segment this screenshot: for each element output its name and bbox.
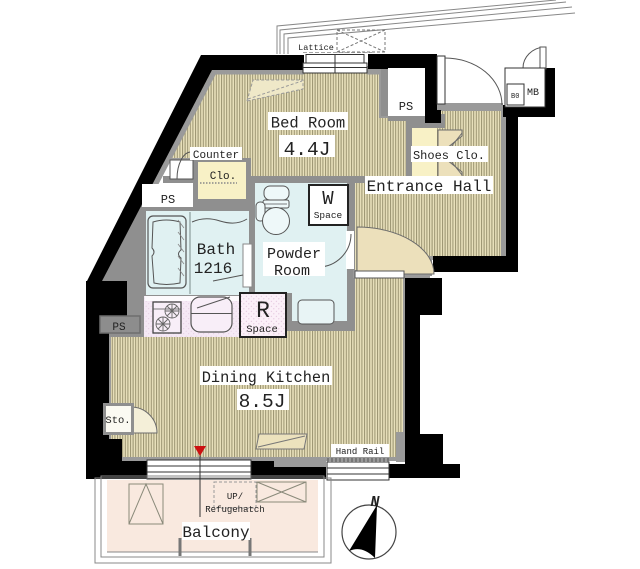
svg-text:B0: B0: [511, 93, 519, 101]
svg-text:PS: PS: [161, 193, 175, 207]
svg-text:R: R: [256, 298, 270, 324]
svg-text:Dining Kitchen: Dining Kitchen: [202, 369, 331, 387]
svg-text:Space: Space: [246, 324, 278, 336]
svg-text:Lattice: Lattice: [298, 43, 334, 53]
svg-text:PS: PS: [399, 100, 413, 114]
svg-text:MB: MB: [527, 88, 539, 99]
svg-text:1216: 1216: [194, 260, 232, 278]
svg-text:Bed Room: Bed Room: [271, 115, 345, 133]
svg-text:Space: Space: [314, 210, 343, 221]
svg-text:Hand Rail: Hand Rail: [336, 447, 385, 457]
svg-text:Powder: Powder: [267, 246, 321, 263]
svg-text:UP/: UP/: [227, 492, 243, 502]
svg-text:Clo.: Clo.: [210, 171, 236, 183]
svg-text:Shoes Clo.: Shoes Clo.: [413, 149, 485, 163]
svg-text:4.4J: 4.4J: [284, 139, 331, 161]
svg-text:Refugehatch: Refugehatch: [205, 505, 264, 515]
svg-text:Sto.: Sto.: [105, 415, 130, 427]
svg-text:8.5J: 8.5J: [239, 391, 286, 413]
svg-text:Balcony: Balcony: [182, 524, 250, 542]
svg-text:Counter: Counter: [193, 150, 239, 162]
svg-text:Entrance Hall: Entrance Hall: [367, 178, 492, 196]
svg-text:Bath: Bath: [197, 241, 235, 259]
svg-text:N: N: [370, 494, 380, 511]
svg-text:Room: Room: [274, 263, 310, 280]
svg-text:PS: PS: [112, 322, 126, 334]
svg-text:W: W: [322, 188, 334, 210]
